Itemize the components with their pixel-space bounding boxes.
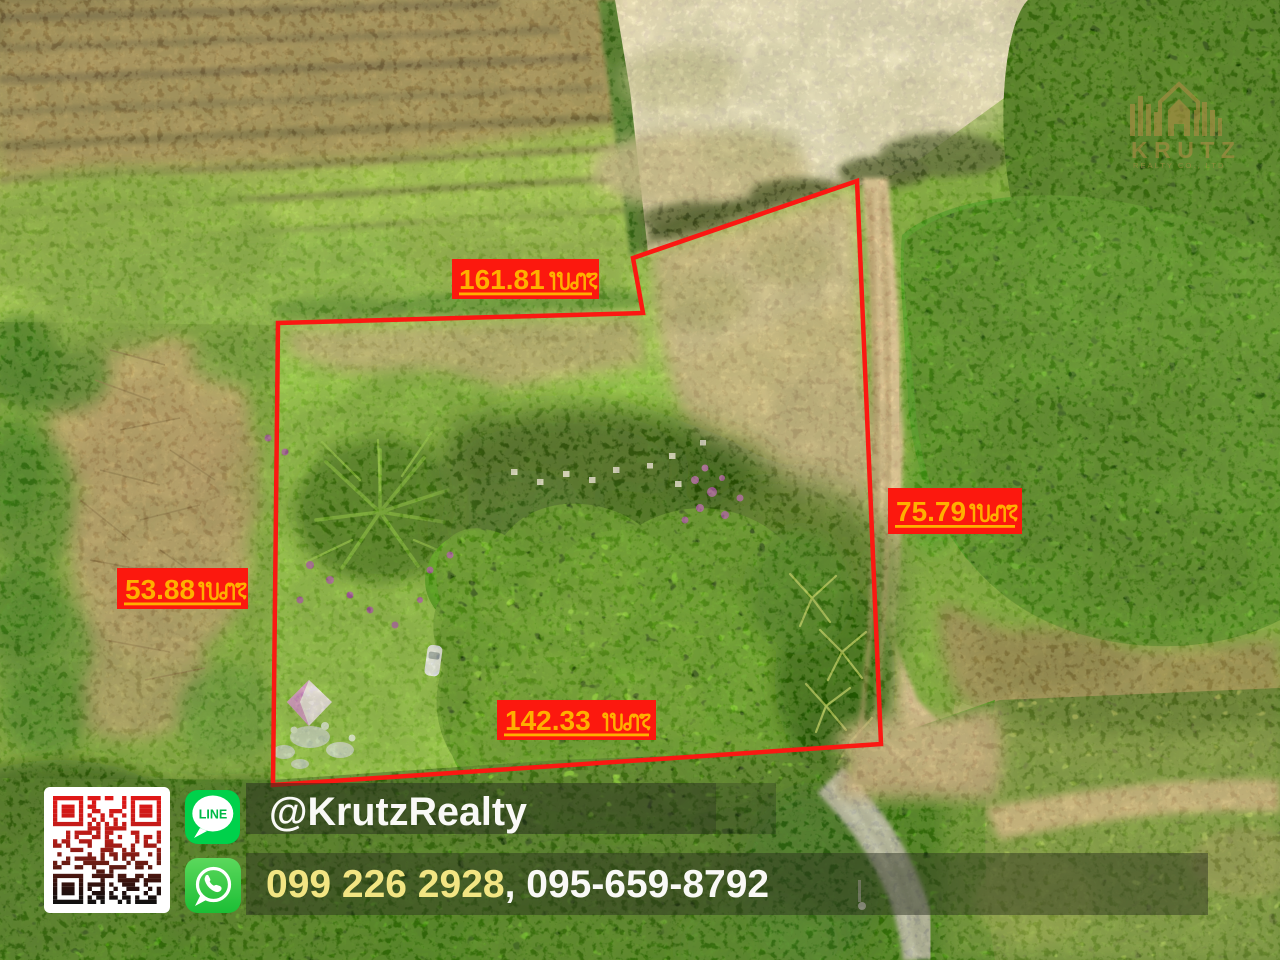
svg-text:099 226 2928, 095-659-8792: 099 226 2928, 095-659-8792 bbox=[266, 863, 769, 906]
svg-text:@KrutzRealty: @KrutzRealty bbox=[269, 790, 527, 834]
svg-text:KRUTZ: KRUTZ bbox=[1131, 137, 1241, 163]
svg-text:LINE: LINE bbox=[199, 808, 227, 822]
svg-text:53.88: 53.88 bbox=[125, 574, 195, 605]
svg-text:REALTY CO., LTD: REALTY CO., LTD bbox=[1133, 161, 1225, 170]
svg-text:75.79: 75.79 bbox=[896, 496, 966, 527]
svg-text:142.33: 142.33 bbox=[505, 705, 591, 736]
svg-text:161.81: 161.81 bbox=[459, 264, 545, 295]
